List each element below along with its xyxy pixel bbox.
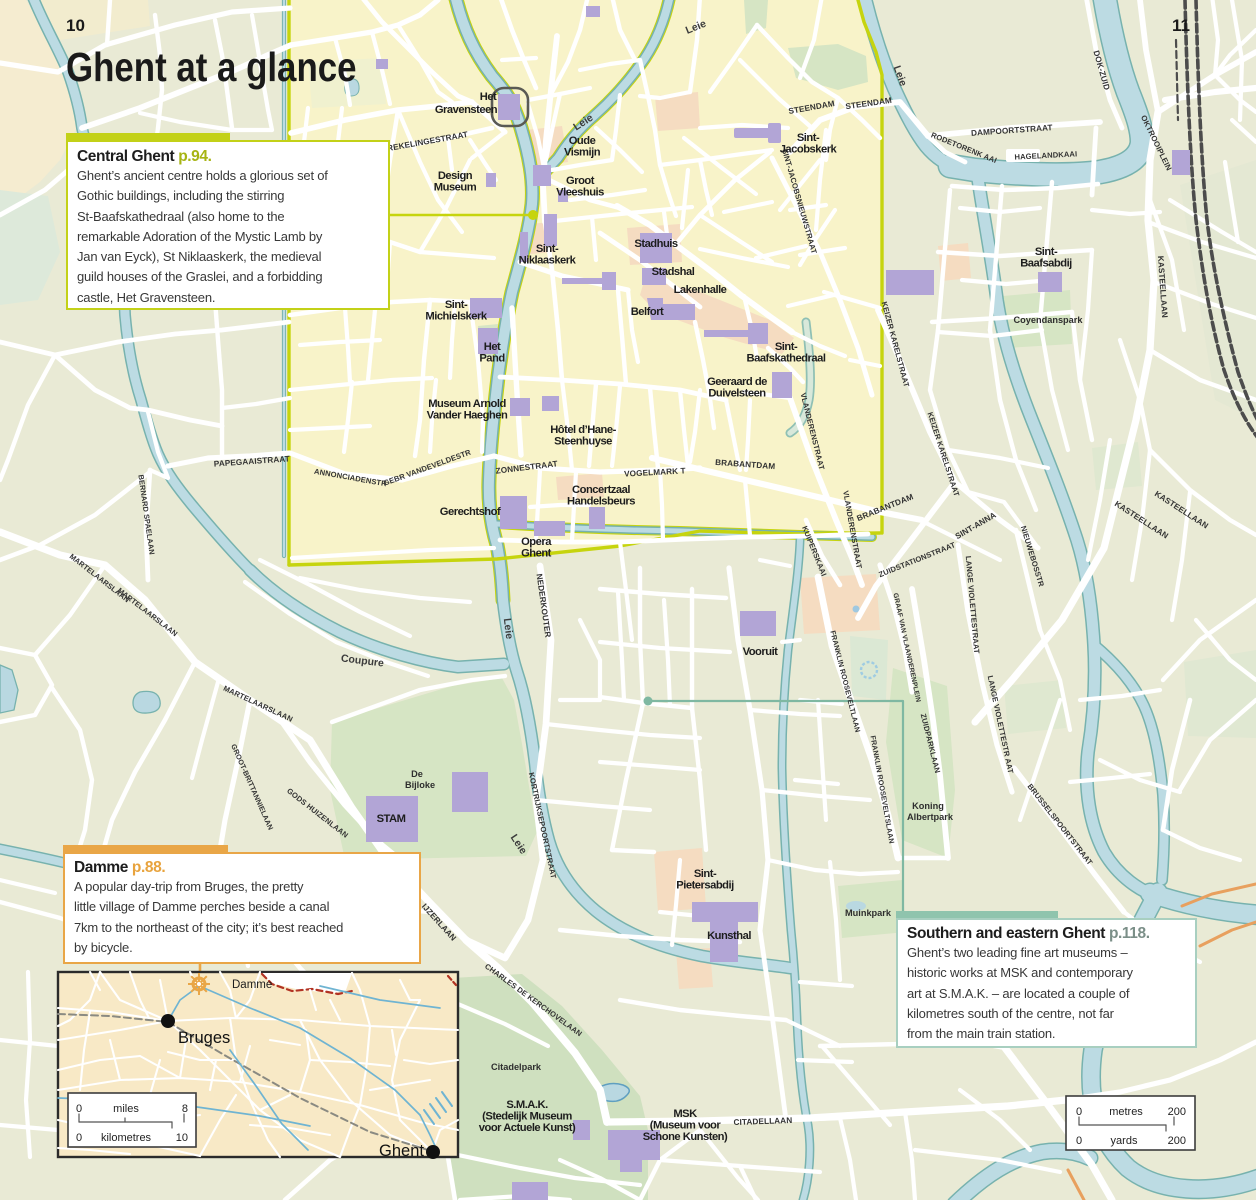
svg-text:Sint-: Sint-	[445, 299, 468, 311]
svg-text:Schone Kunsten): Schone Kunsten)	[643, 1131, 728, 1143]
svg-text:Museum Arnold: Museum Arnold	[428, 398, 506, 410]
svg-text:Kunsthal: Kunsthal	[707, 930, 751, 942]
svg-text:Albertpark: Albertpark	[907, 812, 954, 822]
svg-text:Damme: Damme	[232, 979, 272, 991]
svg-text:8: 8	[182, 1103, 188, 1115]
svg-text:Pietersabdij: Pietersabdij	[676, 880, 734, 892]
svg-text:MSK: MSK	[673, 1108, 697, 1120]
svg-text:STAM: STAM	[377, 813, 406, 825]
svg-text:Duivelsteen: Duivelsteen	[708, 388, 766, 400]
svg-text:Pand: Pand	[479, 353, 505, 365]
svg-text:0: 0	[1076, 1135, 1082, 1147]
svg-text:(Museum voor: (Museum voor	[650, 1120, 722, 1132]
svg-text:Museum: Museum	[434, 182, 477, 194]
svg-text:Sint-: Sint-	[775, 341, 798, 353]
svg-text:Vooruit: Vooruit	[743, 646, 779, 658]
svg-text:0: 0	[76, 1132, 82, 1144]
svg-text:Geeraard de: Geeraard de	[707, 376, 767, 388]
svg-text:(Stedelijk Museum: (Stedelijk Museum	[482, 1111, 572, 1123]
svg-text:Sint-: Sint-	[536, 243, 559, 255]
svg-text:Muinkpark: Muinkpark	[845, 908, 892, 918]
svg-text:Handelsbeurs: Handelsbeurs	[567, 496, 635, 508]
svg-text:De: De	[411, 769, 423, 779]
svg-text:Coyendanspark: Coyendanspark	[1014, 315, 1084, 325]
svg-text:Vismijn: Vismijn	[564, 147, 601, 159]
svg-text:200: 200	[1168, 1106, 1186, 1118]
svg-text:Bruges: Bruges	[178, 1029, 230, 1047]
svg-text:miles: miles	[113, 1103, 139, 1115]
svg-text:Lakenhalle: Lakenhalle	[674, 284, 727, 296]
svg-text:Koning: Koning	[912, 801, 944, 811]
svg-text:Het: Het	[484, 341, 501, 353]
svg-text:200: 200	[1168, 1135, 1186, 1147]
svg-text:Sint-: Sint-	[1035, 246, 1058, 258]
svg-text:Vander Haeghen: Vander Haeghen	[427, 410, 508, 422]
svg-text:Sint-: Sint-	[694, 868, 717, 880]
svg-text:Baafsabdij: Baafsabdij	[1020, 258, 1072, 270]
svg-text:Opera: Opera	[521, 536, 552, 548]
svg-text:S.M.A.K.: S.M.A.K.	[506, 1099, 548, 1111]
svg-text:Het: Het	[480, 91, 497, 103]
svg-text:Bijloke: Bijloke	[405, 780, 435, 790]
svg-text:Leie: Leie	[501, 617, 515, 639]
svg-text:voor Actuele Kunst): voor Actuele Kunst)	[479, 1122, 576, 1134]
svg-text:Ghent: Ghent	[521, 548, 552, 560]
svg-text:Groot: Groot	[566, 175, 595, 187]
svg-text:Sint-: Sint-	[797, 132, 820, 144]
svg-text:Stadhuis: Stadhuis	[634, 238, 678, 250]
svg-text:Stadshal: Stadshal	[652, 266, 695, 278]
svg-text:Hôtel d’Hane-: Hôtel d’Hane-	[550, 424, 616, 436]
svg-text:Jacobskerk: Jacobskerk	[780, 144, 838, 156]
svg-text:Niklaaskerk: Niklaaskerk	[519, 255, 577, 267]
svg-text:0: 0	[1076, 1106, 1082, 1118]
svg-text:Gerechtshof: Gerechtshof	[440, 506, 501, 518]
svg-text:Vleeshuis: Vleeshuis	[556, 187, 604, 199]
svg-text:yards: yards	[1111, 1135, 1138, 1147]
svg-text:10: 10	[176, 1132, 188, 1144]
svg-text:Oude: Oude	[569, 135, 596, 147]
svg-text:Concertzaal: Concertzaal	[572, 484, 630, 496]
svg-text:kilometres: kilometres	[101, 1132, 152, 1144]
svg-text:Michielskerk: Michielskerk	[425, 311, 487, 323]
svg-text:Design: Design	[438, 170, 473, 182]
svg-text:metres: metres	[1109, 1106, 1143, 1118]
svg-text:Baafskathedraal: Baafskathedraal	[747, 353, 826, 365]
svg-text:Belfort: Belfort	[631, 306, 664, 318]
svg-text:Steenhuyse: Steenhuyse	[554, 436, 612, 448]
svg-text:Citadelpark: Citadelpark	[491, 1062, 542, 1072]
svg-text:Ghent: Ghent	[379, 1142, 424, 1160]
svg-text:0: 0	[76, 1103, 82, 1115]
svg-text:Gravensteen: Gravensteen	[435, 104, 498, 116]
